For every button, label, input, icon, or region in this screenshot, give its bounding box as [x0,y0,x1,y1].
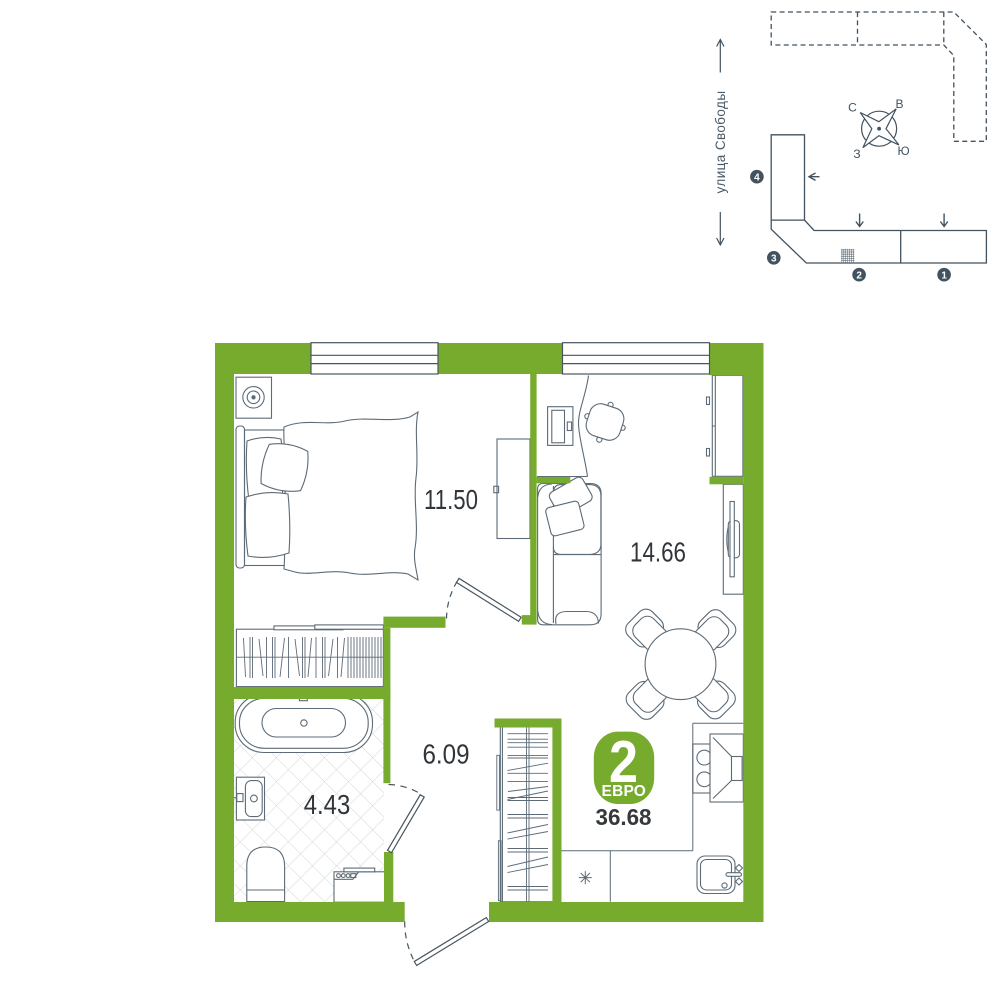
svg-text:4.43: 4.43 [304,789,351,820]
svg-text:1: 1 [941,270,947,281]
svg-text:14.66: 14.66 [630,537,686,568]
svg-text:6.09: 6.09 [423,739,470,770]
svg-text:ЕВРО: ЕВРО [602,783,647,800]
svg-text:3: 3 [771,253,777,264]
svg-text:В: В [895,97,903,111]
svg-text:2: 2 [856,270,862,281]
svg-text:11.50: 11.50 [424,484,478,515]
svg-text:4: 4 [754,172,760,183]
svg-text:улица Свободы: улица Свободы [713,91,728,194]
svg-text:З: З [853,147,860,161]
svg-text:Ю: Ю [897,144,909,158]
svg-text:36.68: 36.68 [596,804,652,830]
svg-text:С: С [848,101,857,115]
